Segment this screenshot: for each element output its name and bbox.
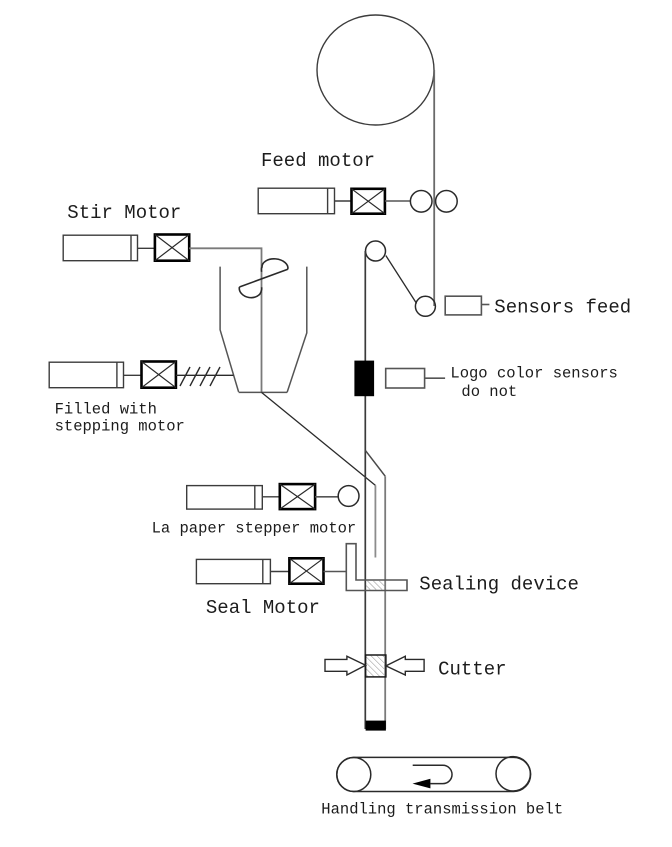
svg-text:Handling transmission belt: Handling transmission belt [321, 801, 563, 819]
svg-text:Sensors feed: Sensors feed [494, 297, 631, 319]
svg-text:do not: do not [461, 383, 517, 401]
svg-text:Filled with: Filled with [55, 401, 157, 419]
svg-text:stepping motor: stepping motor [55, 418, 185, 436]
svg-text:Cutter: Cutter [438, 659, 506, 681]
svg-text:La paper stepper motor: La paper stepper motor [152, 520, 357, 538]
svg-text:Stir Motor: Stir Motor [67, 202, 181, 224]
svg-text:Sealing device: Sealing device [419, 574, 579, 596]
svg-text:Feed motor: Feed motor [261, 150, 375, 172]
svg-text:Seal Motor: Seal Motor [206, 597, 320, 619]
svg-text:Logo color sensors: Logo color sensors [450, 365, 617, 383]
